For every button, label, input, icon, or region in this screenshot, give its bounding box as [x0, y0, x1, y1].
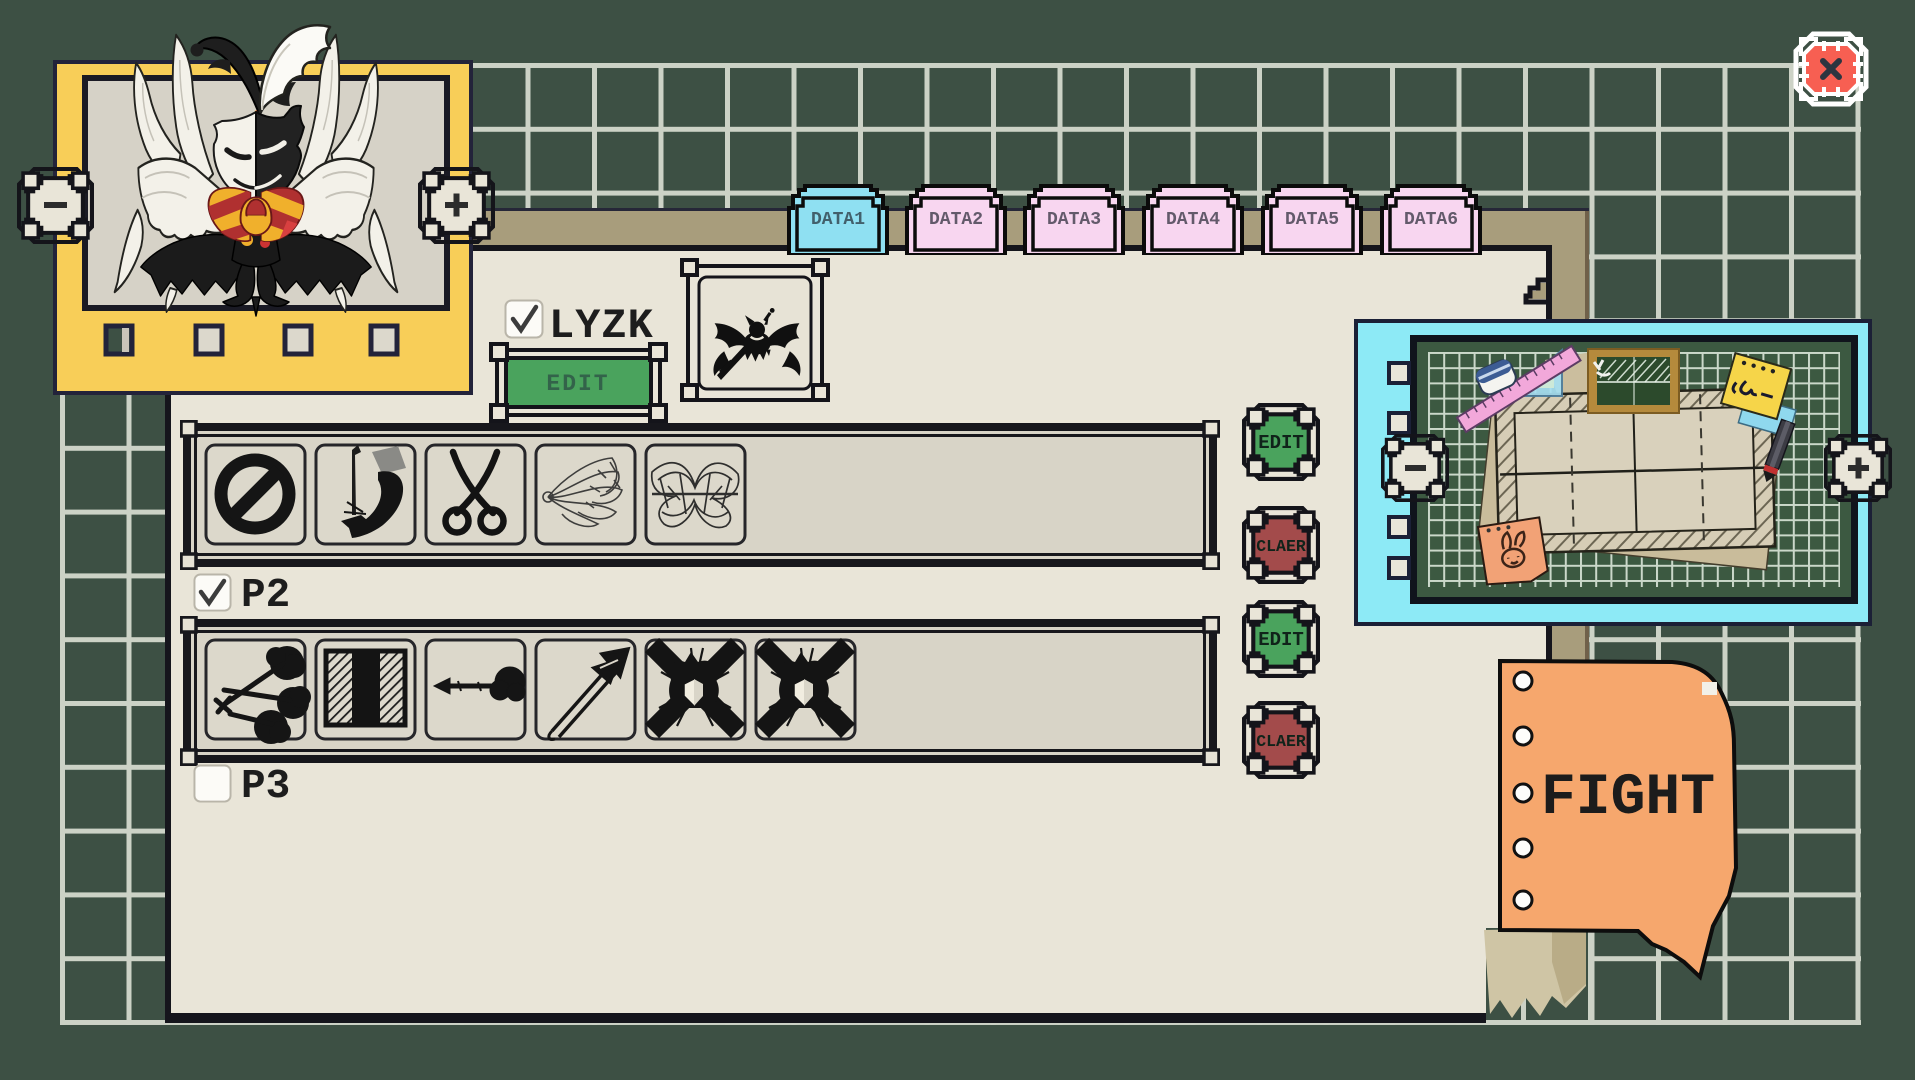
svg-text:CLAER: CLAER: [1256, 537, 1306, 556]
svg-text:DATA4: DATA4: [1166, 210, 1220, 230]
svg-text:P2: P2: [241, 573, 290, 619]
svg-text:DATA1: DATA1: [811, 210, 865, 230]
svg-text:DATA2: DATA2: [929, 210, 983, 230]
svg-text:FIGHT: FIGHT: [1541, 766, 1715, 831]
svg-text:CLAER: CLAER: [1256, 732, 1306, 751]
svg-text:EDIT: EDIT: [546, 371, 609, 397]
svg-text:P3: P3: [241, 764, 290, 810]
svg-text:DATA5: DATA5: [1285, 210, 1339, 230]
svg-text:EDIT: EDIT: [1258, 629, 1304, 651]
svg-text:LYZK: LYZK: [549, 302, 654, 350]
svg-text:DATA6: DATA6: [1404, 210, 1458, 230]
svg-text:DATA3: DATA3: [1047, 210, 1101, 230]
svg-text:EDIT: EDIT: [1258, 432, 1304, 454]
